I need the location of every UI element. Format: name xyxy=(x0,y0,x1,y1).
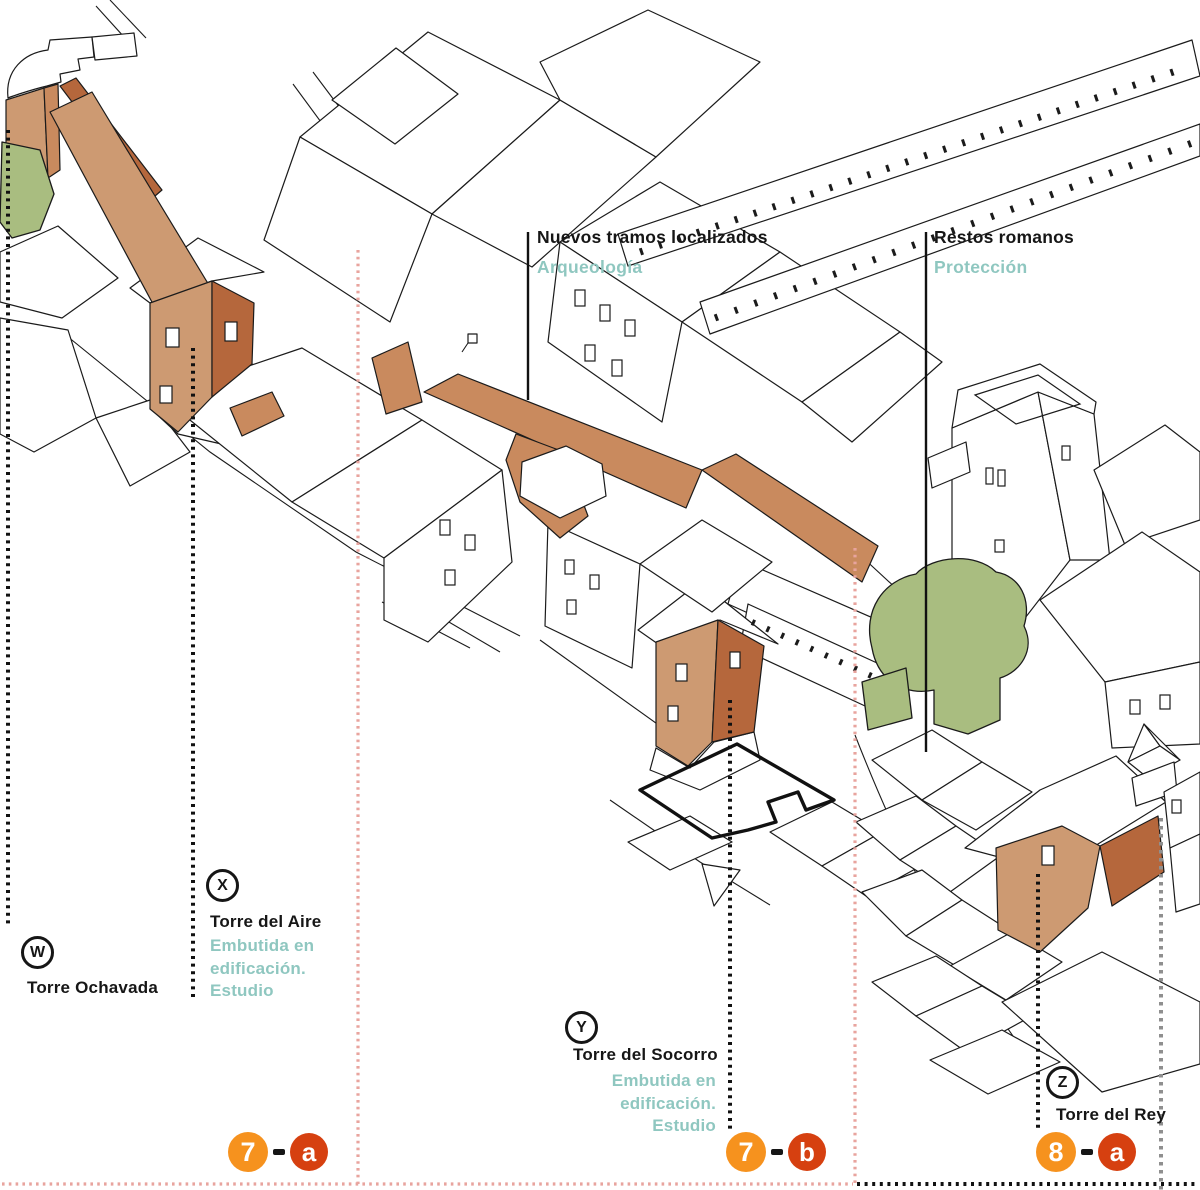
legend-roman-remains: Restos romanos Protección xyxy=(934,227,1074,278)
axonometric-heritage-diagram: Nuevos tramos localizados Arqueología Re… xyxy=(0,0,1200,1190)
tower-x-badge: X xyxy=(206,869,239,902)
tower-w-letter: W xyxy=(30,944,45,962)
dash-separator xyxy=(273,1149,285,1155)
tower-y-name: Torre del Socorro xyxy=(573,1045,718,1065)
tower-y-letter: Y xyxy=(576,1019,587,1037)
torre-socorro-face-light xyxy=(656,620,718,766)
marker-7a: 7 a xyxy=(228,1132,328,1172)
legend-new-sections: Nuevos tramos localizados Arqueología xyxy=(537,227,768,278)
tower-w-name: Torre Ochavada xyxy=(27,978,158,998)
dash-separator xyxy=(771,1149,783,1155)
torre-rey-face-light xyxy=(996,826,1100,952)
marker-7a-number: 7 xyxy=(228,1132,268,1172)
city-wall-drawing xyxy=(0,0,1200,1190)
tower-y-badge: Y xyxy=(565,1011,598,1044)
legend-roman-subtitle: Protección xyxy=(934,257,1074,278)
tower-y-note-1: Embutida en xyxy=(558,1070,716,1093)
marker-8a-letter: a xyxy=(1098,1133,1136,1171)
tower-x-notes: Embutida en edificación. Estudio xyxy=(210,935,314,1003)
marker-7a-letter: a xyxy=(290,1133,328,1171)
marker-8a: 8 a xyxy=(1036,1132,1136,1172)
tower-z-letter: Z xyxy=(1058,1074,1068,1092)
tower-w-badge: W xyxy=(21,936,54,969)
tower-y-notes: Embutida en edificación. Estudio xyxy=(558,1070,716,1138)
tower-x-note-1: Embutida en xyxy=(210,935,314,958)
tower-x-note-2: edificación. xyxy=(210,958,314,981)
legend-roman-title: Restos romanos xyxy=(934,227,1074,248)
marker-7b: 7 b xyxy=(726,1132,826,1172)
tower-y-note-2: edificación. xyxy=(558,1093,716,1116)
legend-new-subtitle: Arqueología xyxy=(537,257,768,278)
tower-z-name: Torre del Rey xyxy=(1056,1105,1166,1125)
marker-8a-number: 8 xyxy=(1036,1132,1076,1172)
marker-7b-number: 7 xyxy=(726,1132,766,1172)
dash-separator xyxy=(1081,1149,1093,1155)
tower-x-note-3: Estudio xyxy=(210,980,314,1003)
tower-x-letter: X xyxy=(217,877,228,895)
tower-z-badge: Z xyxy=(1046,1066,1079,1099)
marker-7b-letter: b xyxy=(788,1133,826,1171)
tower-x-name: Torre del Aire xyxy=(210,912,321,932)
tower-y-note-3: Estudio xyxy=(558,1115,716,1138)
legend-new-title: Nuevos tramos localizados xyxy=(537,227,768,248)
